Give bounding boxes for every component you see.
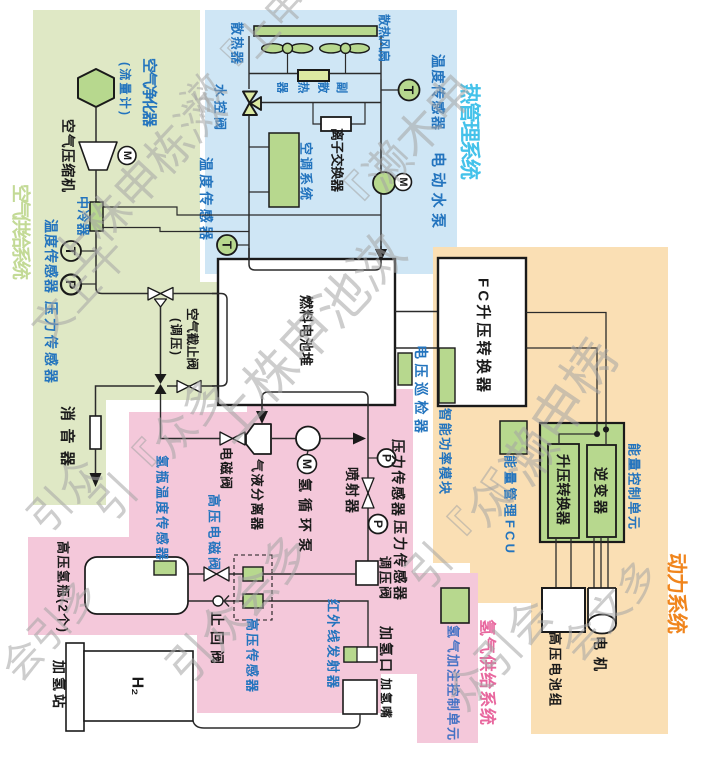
- svg-text:P: P: [371, 520, 385, 528]
- svg-text:空气净化器: 空气净化器: [141, 58, 159, 128]
- svg-text:热: 热: [297, 82, 311, 94]
- svg-text:气液分离器: 气液分离器: [250, 459, 265, 531]
- svg-text:电磁阀: 电磁阀: [219, 447, 234, 489]
- svg-text:M: M: [300, 459, 314, 469]
- svg-text:空气截止阀: 空气截止阀: [185, 308, 200, 370]
- svg-text:空气压缩机: 空气压缩机: [60, 119, 76, 192]
- svg-text:加氢嘴: 加氢嘴: [379, 677, 394, 718]
- svg-text:器: 器: [276, 81, 289, 94]
- svg-text:T: T: [220, 241, 235, 249]
- svg-text:(流量计): (流量计): [118, 62, 133, 115]
- svg-text:副: 副: [335, 82, 349, 94]
- svg-text:调压阀: 调压阀: [378, 556, 393, 599]
- svg-text:散: 散: [317, 82, 331, 94]
- svg-text:H₂: H₂: [129, 677, 146, 696]
- svg-text:温度传感器: 温度传感器: [198, 157, 214, 241]
- svg-text:喷射器: 喷射器: [344, 467, 360, 514]
- svg-text:加氢站: 加氢站: [51, 659, 67, 708]
- svg-text:能量控制单元: 能量控制单元: [627, 443, 642, 529]
- svg-text:逆变器: 逆变器: [593, 467, 609, 515]
- svg-text:散热风扇: 散热风扇: [377, 14, 392, 62]
- svg-text:加氢口: 加氢口: [378, 625, 394, 672]
- svg-text:电压巡检器: 电压巡检器: [413, 345, 429, 434]
- svg-text:空调系统: 空调系统: [299, 142, 314, 200]
- svg-text:T: T: [401, 86, 417, 95]
- svg-text:动力系统: 动力系统: [665, 553, 689, 634]
- svg-text:空气供给系统: 空气供给系统: [10, 184, 33, 280]
- svg-text:压力传感器: 压力传感器: [390, 439, 406, 517]
- svg-text:高压电磁阀: 高压电磁阀: [207, 494, 222, 570]
